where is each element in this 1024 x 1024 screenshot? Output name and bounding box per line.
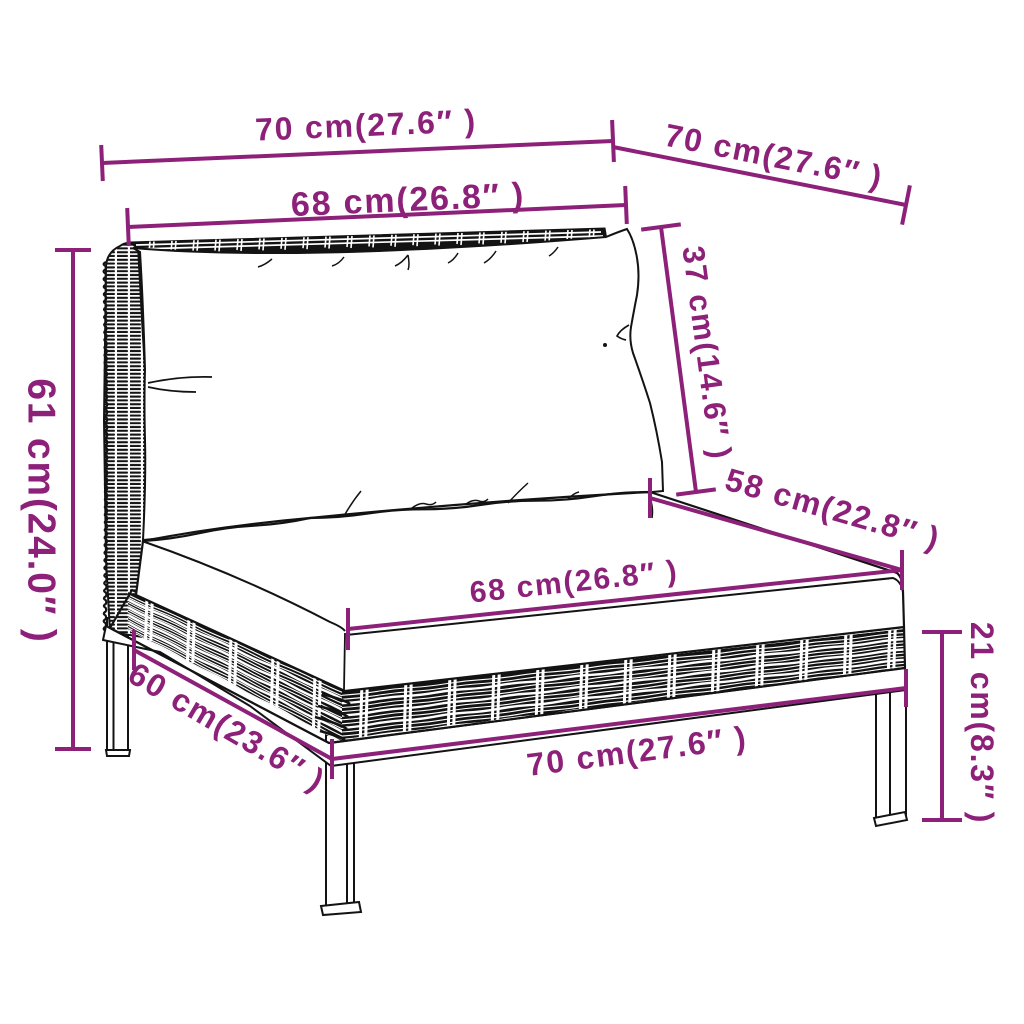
svg-text:21 cm(8.3″ ): 21 cm(8.3″ ): [964, 622, 1000, 824]
svg-text:61 cm(24.0″ ): 61 cm(24.0″ ): [20, 378, 63, 643]
